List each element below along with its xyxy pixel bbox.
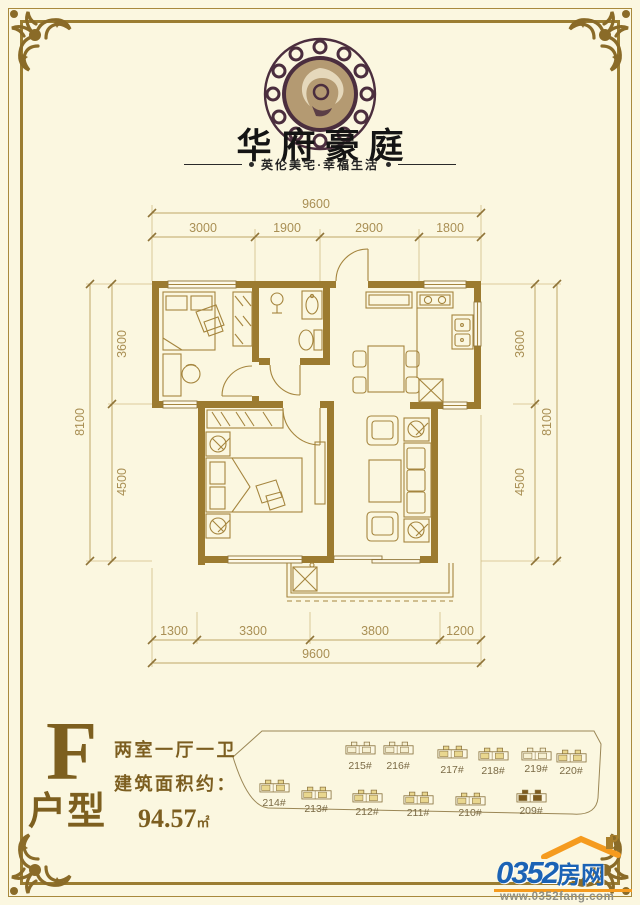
doors: [222, 249, 368, 445]
nightstand: [206, 514, 230, 538]
dim-label: 2900: [355, 221, 383, 235]
window: [163, 401, 197, 408]
dim-label: 8100: [73, 408, 87, 436]
unit-area-label: 建筑面积约：: [114, 770, 244, 796]
cabinet: [315, 442, 325, 504]
dim-label: 9600: [302, 647, 330, 661]
desk: [163, 354, 200, 396]
dim-label: 3000: [189, 221, 217, 235]
site-building: 220#: [557, 750, 586, 777]
bed: [163, 292, 224, 350]
dim-label: 4500: [513, 468, 527, 496]
shower: [302, 291, 322, 319]
dim-label: 1800: [436, 221, 464, 235]
dim-label: 3600: [513, 330, 527, 358]
wardrobe: [233, 292, 252, 346]
toilet: [299, 330, 322, 350]
building-label: 218#: [481, 765, 505, 777]
side-table-plant: [404, 418, 429, 441]
unit-info-block: F 户型 两室一厅一卫 建筑面积约： 94.57㎡: [28, 722, 238, 842]
dim-label: 1200: [446, 624, 474, 638]
building-label: 220#: [559, 765, 583, 777]
armchair: [367, 416, 398, 445]
building-label: 214#: [262, 797, 286, 809]
logo-url: www.0352fang.com: [500, 891, 614, 903]
balcony-sliding-door: [334, 556, 420, 563]
building-label: 215#: [348, 760, 372, 772]
side-table-plant: [404, 519, 429, 542]
nightstand: [206, 432, 230, 456]
washing-machine: [293, 563, 317, 591]
dim-label: 1300: [160, 624, 188, 638]
building-label: 212#: [355, 806, 379, 818]
dim-label: 4500: [115, 468, 129, 496]
building-label: 213#: [304, 803, 328, 815]
logo-suffix: 房网: [557, 862, 605, 889]
dim-label: 3300: [239, 624, 267, 638]
site-logo: 0352房网 www.0352fang.com: [490, 837, 638, 903]
unit-layout: 两室一厅一卫: [114, 736, 244, 762]
bathroom-door: [270, 365, 300, 395]
site-building: 211#: [404, 792, 433, 819]
site-plan: 215# 216# 217# 218# 219# 220# 214# 213#: [233, 731, 601, 819]
bedroom1-door: [222, 366, 252, 396]
bathroom-fixtures: [271, 291, 322, 350]
building-label: 210#: [458, 807, 482, 819]
dim-label: 1900: [273, 221, 301, 235]
unit-type-label: 户型: [28, 780, 106, 835]
logo-number: 0352: [496, 855, 557, 890]
entry-cabinet: [366, 292, 412, 308]
wardrobe: [207, 410, 283, 428]
building-label: 217#: [440, 764, 464, 776]
dim-top: 9600 3000 1900 2900 1800: [148, 197, 485, 281]
building-label: 216#: [386, 760, 410, 772]
dim-label: 8100: [540, 408, 554, 436]
building-label: 219#: [524, 763, 548, 775]
site-building: 213#: [302, 787, 331, 815]
site-building: 218#: [479, 748, 508, 777]
building-label: 211#: [407, 807, 430, 819]
site-building: 214#: [260, 780, 289, 809]
kitchen-furniture: [353, 292, 473, 402]
walls: [152, 281, 481, 565]
dim-label: 3600: [115, 330, 129, 358]
master-bedroom-furniture: [206, 410, 325, 538]
sofa: [404, 443, 431, 517]
site-building: 210#: [456, 793, 485, 819]
shaft: [419, 379, 443, 402]
double-bed: [206, 458, 302, 512]
window: [168, 281, 236, 288]
dining-table: [353, 346, 419, 393]
window: [228, 556, 302, 563]
dim-label: 3800: [361, 624, 389, 638]
window: [474, 302, 481, 346]
dim-right: 8100 3600 4500: [481, 280, 561, 565]
balcony: [287, 563, 453, 601]
bedroom1-furniture: [163, 292, 252, 396]
window: [443, 402, 467, 409]
dim-label: 9600: [302, 197, 330, 211]
dim-left: 8100 3600 4500: [73, 280, 152, 565]
building-label: 209#: [519, 805, 543, 817]
living-room-furniture: [367, 416, 431, 542]
site-building: 215#: [346, 742, 375, 772]
coffee-table: [369, 460, 401, 502]
site-building: 216#: [384, 742, 413, 772]
site-building: 219#: [522, 748, 551, 775]
stove: [417, 292, 453, 308]
pedestal-sink: [271, 293, 283, 313]
window: [424, 281, 466, 288]
entry-door: [336, 249, 368, 281]
armchair: [367, 512, 398, 541]
master-bedroom-door: [283, 408, 320, 445]
site-building: 212#: [353, 790, 382, 818]
site-building: 217#: [438, 746, 467, 776]
site-building-highlighted: 209#: [517, 790, 546, 817]
kitchen-sink: [452, 315, 473, 349]
unit-area-value: 94.57㎡: [138, 804, 244, 834]
